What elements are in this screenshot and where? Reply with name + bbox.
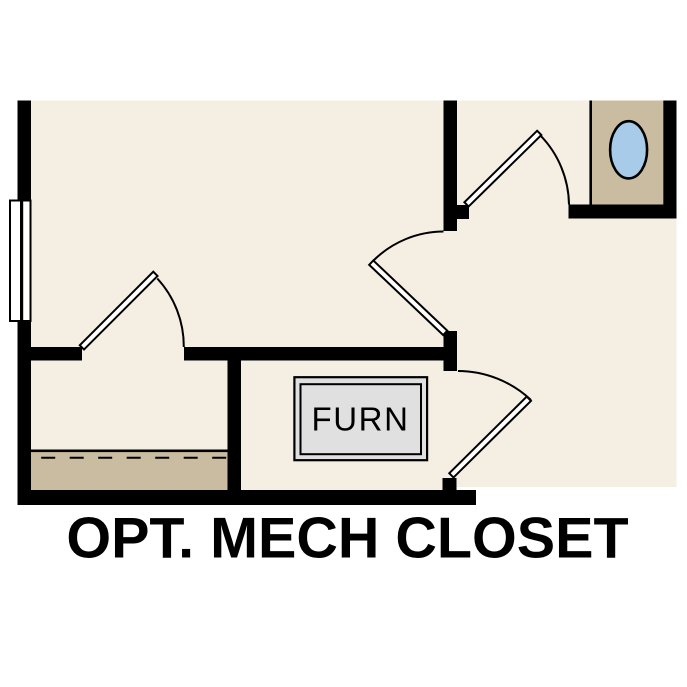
svg-text:FURN: FURN — [311, 401, 409, 438]
svg-text:OPT. MECH CLOSET: OPT. MECH CLOSET — [66, 507, 628, 571]
